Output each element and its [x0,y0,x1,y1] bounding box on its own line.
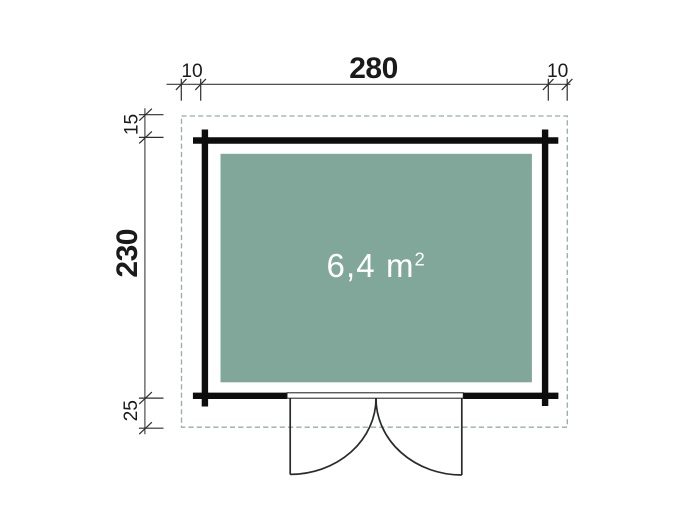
svg-text:15: 15 [122,114,143,135]
svg-text:25: 25 [121,400,142,421]
svg-text:280: 280 [349,52,398,85]
svg-text:6,4 m2: 6,4 m2 [327,247,426,284]
svg-text:10: 10 [181,61,202,82]
svg-text:10: 10 [547,61,568,82]
svg-text:230: 230 [111,229,144,278]
